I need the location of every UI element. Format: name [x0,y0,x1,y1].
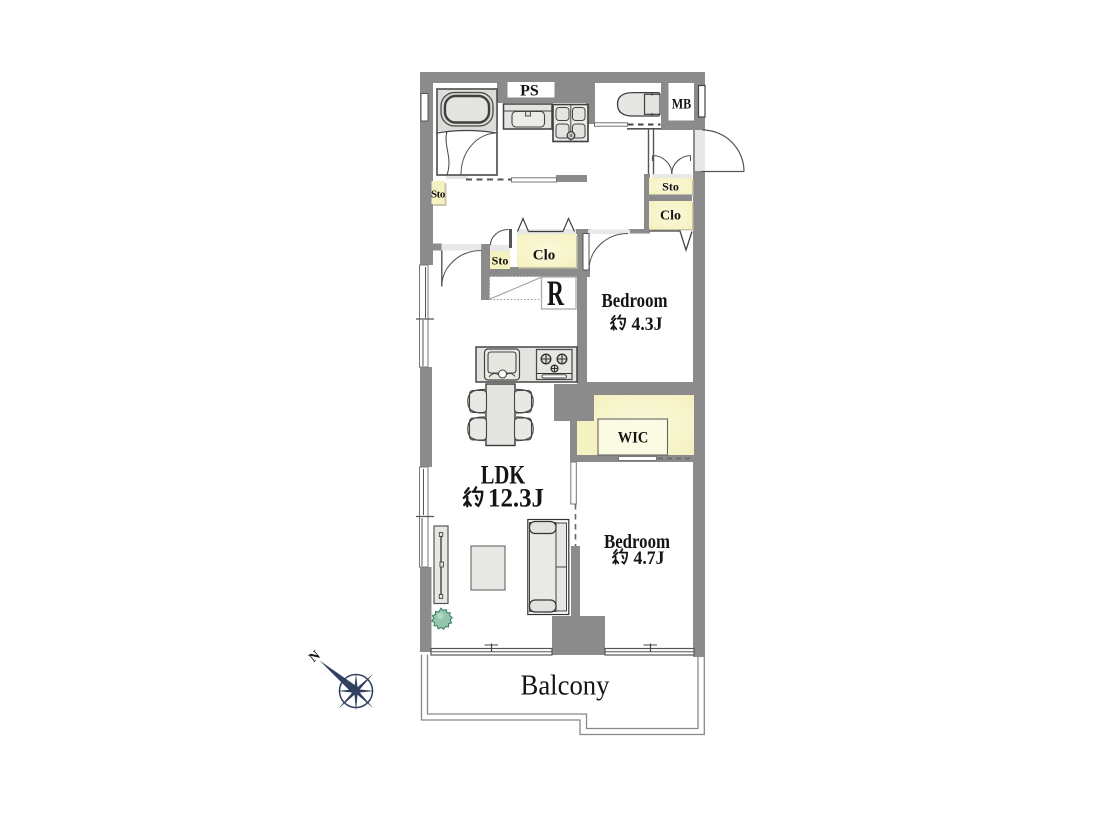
svg-text:PS: PS [520,83,539,100]
svg-text:12.3J: 12.3J [488,484,544,513]
svg-text:4.3J: 4.3J [632,314,663,335]
svg-text:Clo: Clo [660,209,681,224]
svg-text:Bedroom: Bedroom [602,290,668,312]
svg-text:4.7J: 4.7J [634,548,665,569]
svg-text:Sto: Sto [492,254,509,268]
svg-text:R: R [547,273,565,313]
svg-text:Sto: Sto [662,180,679,194]
svg-text:Sto: Sto [431,189,446,201]
svg-text:WIC: WIC [618,430,649,447]
svg-text:Balcony: Balcony [521,671,610,702]
svg-text:Clo: Clo [533,248,556,264]
svg-text:MB: MB [672,97,692,113]
